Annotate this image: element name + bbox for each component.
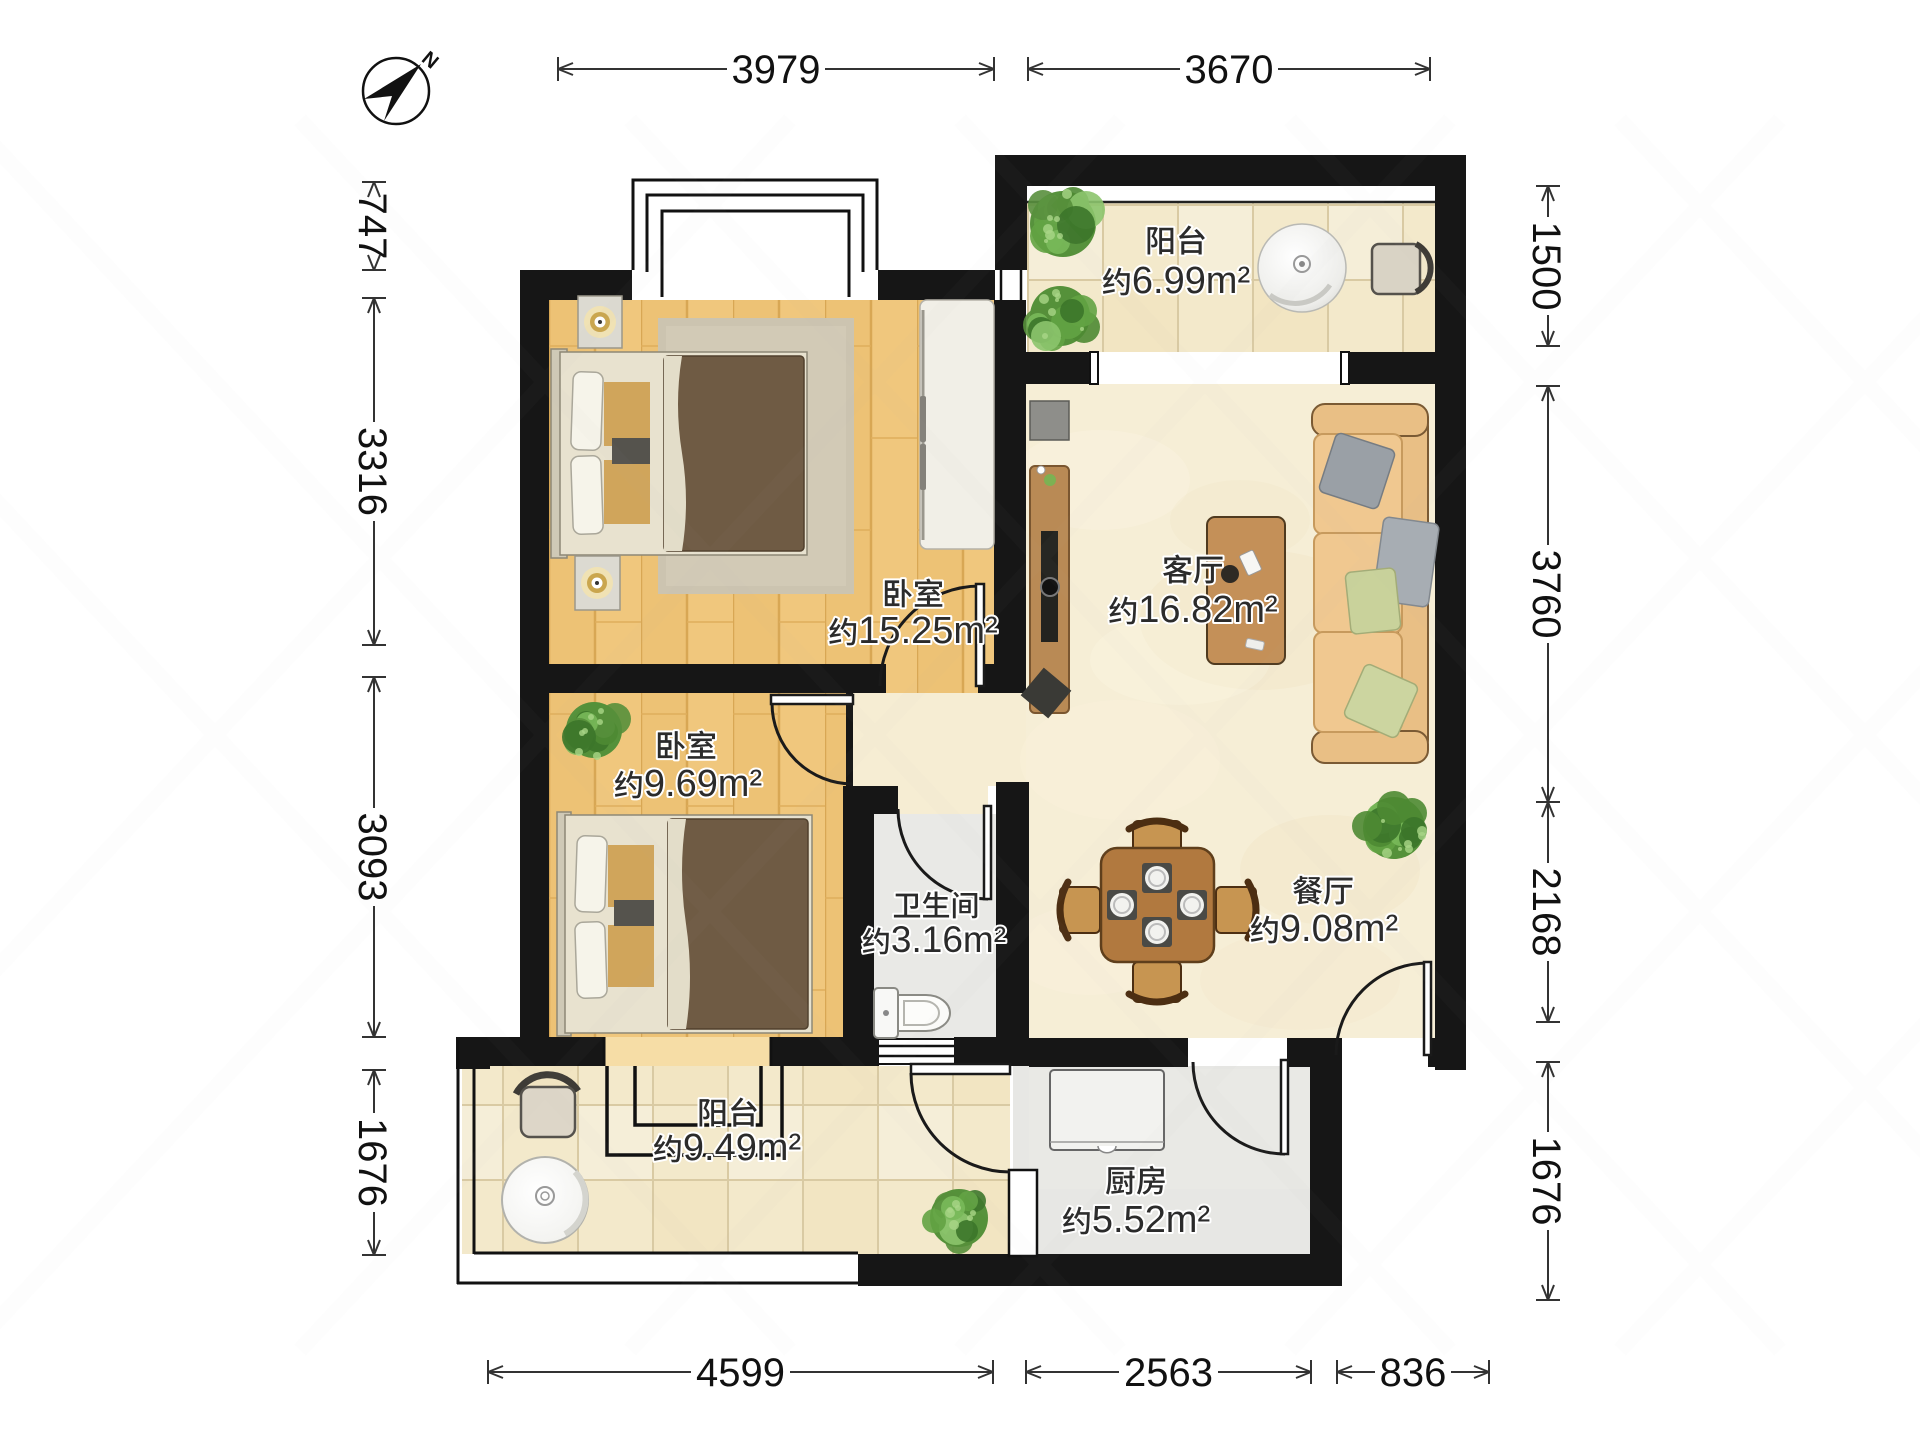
svg-text:3316: 3316	[350, 427, 394, 516]
svg-text:16.82: 16.82	[1138, 589, 1233, 631]
svg-text:15.25: 15.25	[858, 610, 953, 652]
svg-text:m: m	[1233, 589, 1265, 631]
svg-text:²: ²	[750, 763, 763, 805]
svg-text:3760: 3760	[1524, 550, 1568, 639]
svg-text:1676: 1676	[350, 1118, 394, 1207]
svg-text:6.99: 6.99	[1132, 260, 1206, 302]
svg-text:9.49: 9.49	[683, 1127, 757, 1169]
svg-text:3670: 3670	[1185, 48, 1274, 92]
svg-text:m: m	[1206, 260, 1238, 302]
svg-text:2563: 2563	[1124, 1351, 1213, 1395]
svg-text:9.69: 9.69	[644, 763, 718, 805]
svg-text:²: ²	[1238, 260, 1251, 302]
svg-text:m: m	[757, 1127, 789, 1169]
svg-text:m: m	[963, 919, 994, 960]
svg-text:747: 747	[350, 193, 394, 260]
svg-text:2168: 2168	[1524, 868, 1568, 957]
svg-text:²: ²	[1198, 1199, 1211, 1241]
svg-text:1500: 1500	[1524, 222, 1568, 311]
svg-text:3979: 3979	[732, 48, 821, 92]
svg-text:m: m	[1166, 1199, 1198, 1241]
svg-text:3.16: 3.16	[891, 919, 963, 960]
svg-text:4599: 4599	[696, 1351, 785, 1395]
svg-text:1676: 1676	[1524, 1137, 1568, 1226]
svg-text:²: ²	[1265, 589, 1278, 631]
svg-text:m: m	[718, 763, 750, 805]
svg-text:3093: 3093	[350, 813, 394, 902]
svg-text:836: 836	[1380, 1351, 1447, 1395]
